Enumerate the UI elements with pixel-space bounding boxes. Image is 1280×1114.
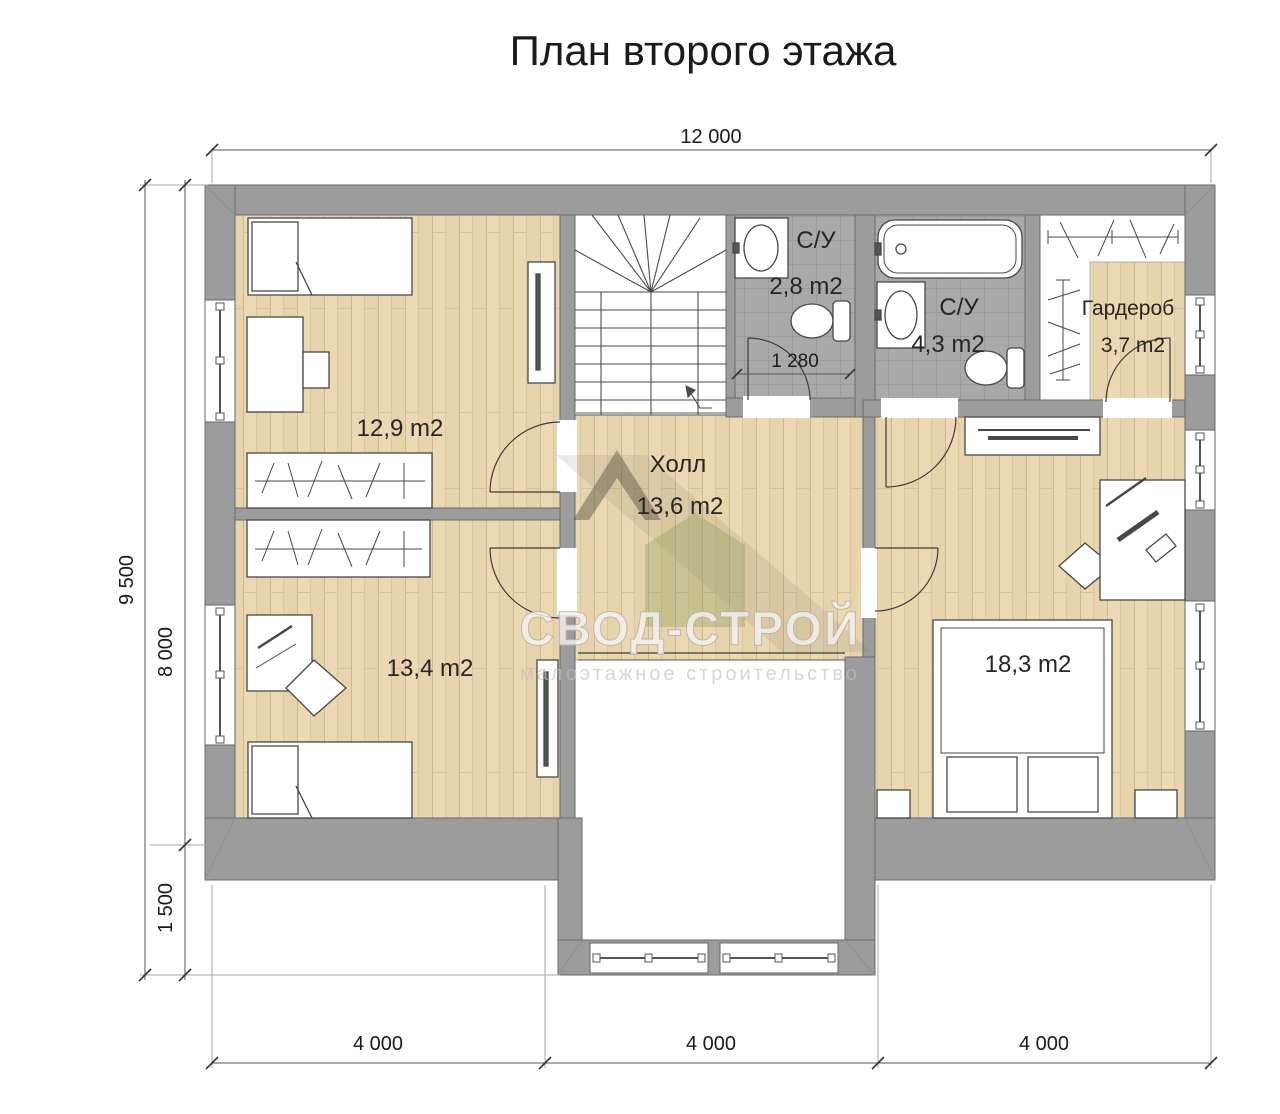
label-wardrobe-name: Гардероб — [1082, 297, 1174, 320]
label-bathroom-2-name: С/У — [939, 294, 979, 321]
watermark-tagline: малоэтажное строительство — [520, 663, 860, 685]
floor-plan-svg: СВОД-СТРОЙ малоэтажное строительство 12 — [0, 0, 1280, 1114]
dim-bathroom-width: 1 280 — [771, 351, 819, 372]
wall-bottom-right — [875, 818, 1215, 880]
dim-bottom-1: 4 000 — [353, 1033, 403, 1055]
pillow — [252, 222, 298, 291]
page-title: План второго этажа — [510, 27, 897, 74]
window-left-2 — [205, 605, 235, 745]
wall-between-bedrooms — [235, 508, 560, 520]
wardrobe-floor-wood — [1090, 262, 1185, 400]
wall-extension-right — [845, 657, 875, 975]
watermark-brand: СВОД-СТРОЙ — [519, 601, 860, 656]
label-bathroom-1-area: 2,8 m2 — [769, 273, 842, 300]
dim-left-total: 9 500 — [116, 555, 138, 605]
label-master-area: 18,3 m2 — [985, 651, 1072, 678]
label-hall-name: Холл — [650, 451, 707, 478]
desk-master — [1100, 480, 1185, 600]
label-hall-area: 13,6 m2 — [637, 493, 724, 520]
tv-icon — [536, 274, 540, 370]
tv-panel-bedroom-1 — [528, 262, 555, 383]
dim-top: 12 000 — [680, 126, 741, 148]
dim-bottom-2: 4 000 — [686, 1033, 736, 1055]
desk-bedroom-1 — [247, 317, 303, 412]
wall-right — [1185, 185, 1215, 880]
window-left-1 — [205, 300, 235, 422]
label-bathroom-2-area: 4,3 m2 — [911, 331, 984, 358]
chair-bedroom-1 — [303, 352, 329, 388]
void-balcony-floor — [580, 662, 845, 945]
wardrobe-band-bedroom-1 — [247, 453, 432, 508]
wall-bath-divider — [855, 215, 875, 417]
nightstand-left — [877, 790, 910, 818]
dim-left-main: 8 000 — [155, 627, 177, 677]
sink-bathroom-1 — [733, 218, 788, 278]
window-right-3 — [1185, 601, 1215, 731]
floor-plan-page: СВОД-СТРОЙ малоэтажное строительство 12 — [0, 0, 1280, 1114]
pillow — [947, 757, 1017, 812]
pillow — [1028, 757, 1098, 812]
label-bedroom-2-area: 13,4 m2 — [387, 655, 474, 682]
window-right-2 — [1185, 430, 1215, 510]
window-balcony-1 — [590, 943, 708, 973]
wall-partition-center — [560, 215, 575, 818]
window-right-1 — [1185, 295, 1215, 375]
wall-top — [205, 185, 1215, 215]
pillow — [252, 746, 298, 814]
window-balcony-2 — [720, 943, 838, 973]
dim-bottom-3: 4 000 — [1019, 1033, 1069, 1055]
label-bathroom-1-name: С/У — [796, 227, 836, 254]
wall-bath2-wardrobe — [1025, 215, 1040, 400]
tv-icon — [544, 672, 548, 766]
nightstand-right — [1135, 790, 1177, 818]
wall-hall-master — [863, 417, 875, 657]
dim-left-extension: 1 500 — [155, 883, 177, 933]
wardrobe-band-bedroom-2 — [247, 520, 430, 577]
label-bedroom-1-area: 12,9 m2 — [357, 415, 444, 442]
toilet-bathroom-1 — [791, 301, 850, 341]
wall-left — [205, 185, 235, 880]
bathtub — [875, 220, 1022, 278]
label-wardrobe-area: 3,7 m2 — [1101, 334, 1165, 357]
wall-bottom-left — [205, 818, 562, 880]
